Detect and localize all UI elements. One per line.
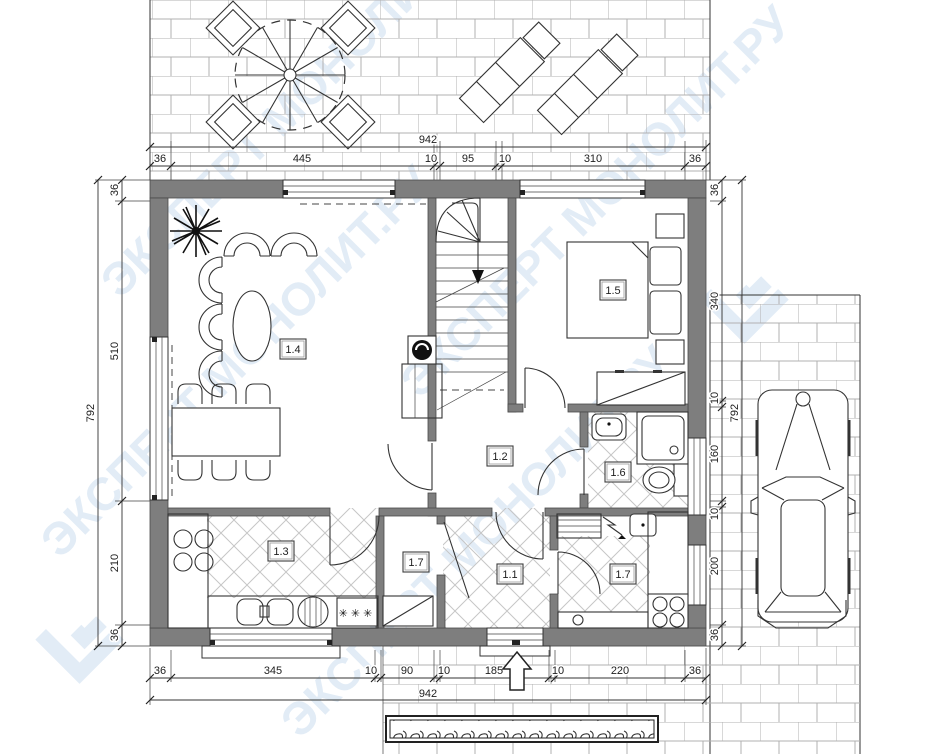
svg-text:10: 10: [365, 665, 377, 677]
svg-text:1.7: 1.7: [615, 569, 630, 581]
pillow: [650, 247, 681, 285]
ornamental-band: [386, 716, 658, 742]
wall-stair-left-upper: [428, 198, 436, 441]
front-door: [480, 628, 550, 656]
watermark-text: ЭКСПЕРТ МОНОЛИТ.РУ: [30, 155, 442, 567]
store-left-cabinet: [383, 596, 433, 626]
wall-entry-store-b: [550, 594, 558, 628]
wall-bath-b: [580, 494, 588, 508]
svg-text:10: 10: [425, 153, 437, 165]
svg-text:10: 10: [499, 153, 511, 165]
svg-text:220: 220: [611, 665, 629, 677]
wall-stair-right: [508, 198, 516, 412]
svg-text:792: 792: [729, 404, 741, 422]
kitchen-sink: [237, 599, 293, 625]
svg-text:1.4: 1.4: [285, 344, 300, 356]
washing-machine: [298, 597, 328, 627]
wall-mid-b: [379, 508, 492, 516]
wardrobe: [597, 370, 685, 405]
nightstand: [656, 214, 684, 238]
store-right-bench: [558, 612, 648, 628]
svg-text:310: 310: [584, 153, 602, 165]
coffee-table: [233, 291, 271, 361]
room-label-1-7-right: 1.7: [610, 564, 636, 584]
fridge: ✳✳✳: [337, 598, 377, 626]
floor-plan-drawing: ЭКСПЕРТ МОНОЛИТ.РУ ЭКСПЕРТ МОНОЛИТ.РУ ЭК…: [0, 0, 940, 754]
window-living-left: [150, 337, 168, 500]
window-bath-right: [688, 438, 706, 515]
dining-chairs-bottom: [178, 460, 270, 480]
svg-text:792: 792: [85, 404, 97, 422]
svg-text:1.1: 1.1: [502, 569, 517, 581]
shower: [637, 412, 688, 464]
door-bedroom: [525, 368, 565, 408]
svg-text:340: 340: [709, 292, 721, 310]
floor-plan-svg: ЭКСПЕРТ МОНОЛИТ.РУ ЭКСПЕРТ МОНОЛИТ.РУ ЭК…: [0, 0, 940, 754]
svg-text:1.6: 1.6: [610, 467, 625, 479]
svg-text:10: 10: [438, 665, 450, 677]
svg-text:36: 36: [154, 665, 166, 677]
svg-text:942: 942: [419, 134, 437, 146]
svg-text:510: 510: [109, 342, 121, 360]
room-label-1-6: 1.6: [605, 462, 631, 482]
room-label-1-2: 1.2: [487, 446, 513, 466]
svg-text:36: 36: [109, 184, 121, 196]
svg-text:1.5: 1.5: [605, 285, 620, 297]
stove: [648, 594, 688, 628]
window-kitchen-bottom: [202, 628, 340, 658]
wall-bedroom-bottom-a: [508, 404, 523, 412]
room-label-1-4: 1.4: [280, 339, 306, 359]
door-living-hall: [388, 443, 432, 490]
window-store-right: [688, 545, 706, 605]
svg-text:160: 160: [709, 445, 721, 463]
svg-text:10: 10: [709, 392, 721, 404]
nightstand: [656, 340, 684, 364]
room-label-1-1: 1.1: [497, 564, 523, 584]
wall-bath-a: [580, 412, 588, 447]
svg-text:36: 36: [154, 153, 166, 165]
svg-text:36: 36: [689, 665, 701, 677]
room-label-1-5: 1.5: [600, 280, 626, 300]
svg-text:10: 10: [552, 665, 564, 677]
svg-text:90: 90: [401, 665, 413, 677]
svg-text:95: 95: [462, 153, 474, 165]
svg-text:210: 210: [109, 554, 121, 572]
svg-text:345: 345: [264, 665, 282, 677]
room-label-1-7-left: 1.7: [403, 552, 429, 572]
svg-text:200: 200: [709, 557, 721, 575]
window-bedroom-top: [520, 180, 645, 198]
sink: [592, 414, 626, 440]
bedroom-furniture: [567, 214, 685, 405]
wall-mid-a: [168, 508, 330, 516]
svg-text:1.7: 1.7: [408, 557, 423, 569]
svg-text:942: 942: [419, 688, 437, 700]
svg-text:36: 36: [689, 153, 701, 165]
wall-store-entry-b: [437, 575, 445, 628]
svg-text:10: 10: [709, 508, 721, 520]
stair-walk-line: [452, 203, 478, 275]
toilet: [643, 464, 688, 496]
pillow: [650, 291, 681, 334]
dining-table: [172, 408, 280, 456]
stair-winders: [436, 198, 508, 242]
svg-text:1.3: 1.3: [273, 546, 288, 558]
svg-text:1.2: 1.2: [492, 451, 507, 463]
window-living-top: [283, 180, 395, 198]
fridge-symbol: ✳✳✳: [339, 608, 376, 620]
svg-text:36: 36: [709, 629, 721, 641]
room-label-1-3: 1.3: [268, 541, 294, 561]
svg-text:445: 445: [293, 153, 311, 165]
electric-arrow: [603, 517, 622, 535]
car: [751, 390, 855, 628]
svg-text:36: 36: [709, 184, 721, 196]
svg-text:185: 185: [485, 665, 503, 677]
svg-text:36: 36: [109, 629, 121, 641]
